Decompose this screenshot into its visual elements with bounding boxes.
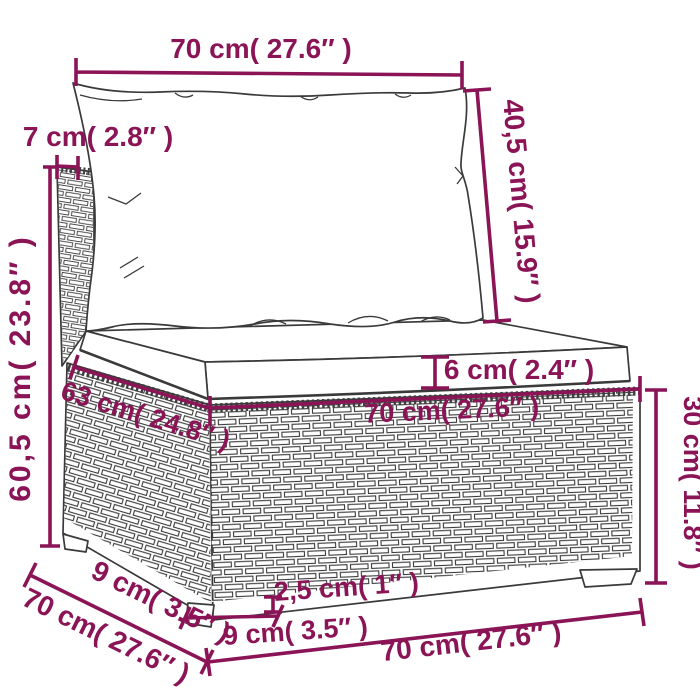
dim-front-bottom-width-label: 70 cm( 27.6″ ) (379, 616, 563, 667)
dim-seat-cushion-thickness: 6 cm( 2.4″ ) (421, 354, 594, 388)
dim-base-height-label: 30 cm( 11.8″ ) (678, 396, 700, 570)
dim-top-width: 70 cm( 27.6″ ) (76, 33, 462, 89)
foot-front-right (580, 569, 637, 587)
dim-back-panel-depth-label: 7 cm( 2.8″ ) (23, 121, 173, 152)
dim-seat-cushion-thickness-label: 6 cm( 2.4″ ) (444, 354, 594, 385)
dim-overall-height: 60,5 cm( 23.8″ ) (4, 167, 60, 546)
dim-base-height: 30 cm( 11.8″ ) (645, 390, 700, 583)
dimension-diagram: 70 cm( 27.6″ ) 7 cm( 2.8″ ) 60,5 cm( 23.… (0, 0, 700, 700)
dim-back-cushion-height-label: 40,5 cm( 15.9″ ) (497, 98, 546, 305)
dim-top-width-label: 70 cm( 27.6″ ) (170, 33, 352, 64)
sofa-dimension-drawing: 70 cm( 27.6″ ) 7 cm( 2.8″ ) 60,5 cm( 23.… (0, 0, 700, 700)
dim-overall-height-label: 60,5 cm( 23.8″ ) (4, 234, 37, 502)
